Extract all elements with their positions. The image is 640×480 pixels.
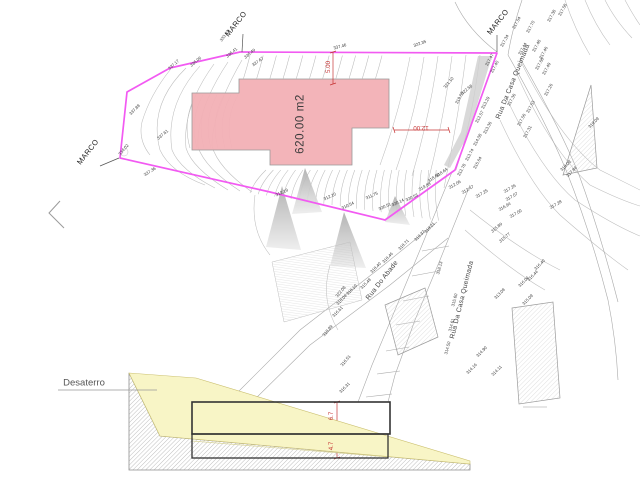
dimension-label: 6.7 bbox=[329, 412, 335, 421]
building-hatched-right bbox=[512, 302, 560, 404]
dimension-label: 4.7 bbox=[329, 442, 335, 451]
stairs-hatch-area bbox=[272, 242, 362, 322]
dimension-label: 5.00 bbox=[326, 61, 332, 73]
building-footprint bbox=[192, 79, 389, 165]
neighbour-buildings bbox=[385, 85, 597, 404]
survey-site-plan: MARCOMARCOMARCORua Do AbadeRua Da Casa Q… bbox=[0, 0, 640, 480]
section-title: Desaterro bbox=[63, 378, 105, 388]
cross-section bbox=[58, 373, 470, 470]
dimension-label: 12.00 bbox=[413, 124, 428, 130]
chevron-mark bbox=[49, 201, 64, 228]
building-hatched-center bbox=[385, 288, 438, 355]
area-label: 620.00 m2 bbox=[295, 94, 307, 154]
